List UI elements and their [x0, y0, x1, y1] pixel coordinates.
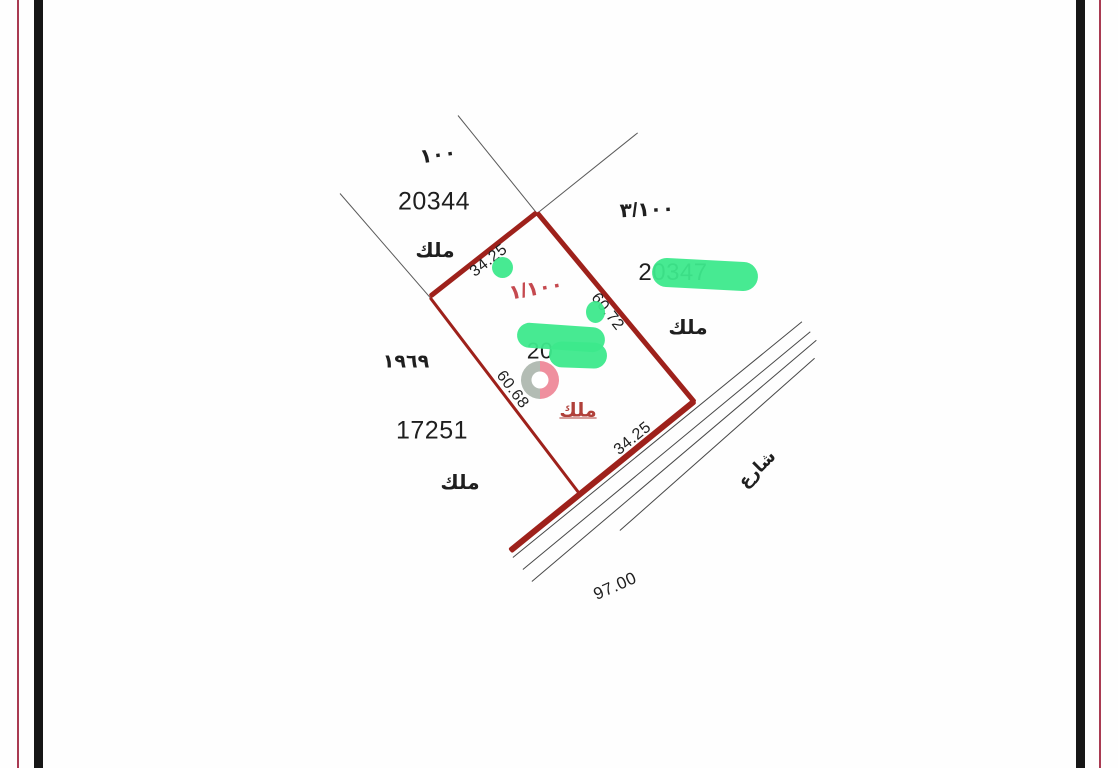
- highlight-east-number: [651, 257, 758, 292]
- highlight-dot-top: [492, 257, 513, 278]
- west-plot-ref: ١٩٦٩: [383, 353, 429, 372]
- frame-right-black-bar: [1076, 0, 1085, 768]
- west-plot-tenure: ملك: [440, 473, 479, 493]
- highlight-parcel-number-2: [549, 341, 608, 369]
- east-plot-ref: ٣/١٠٠: [619, 199, 674, 222]
- highlight-dot-dim-right: [586, 301, 605, 323]
- frame-left-black-bar: [34, 0, 43, 768]
- west-plot-number: 17251: [396, 419, 468, 444]
- location-marker-icon: [521, 361, 559, 399]
- parcel-edge-right: [535, 211, 697, 404]
- street-label: شارع: [735, 447, 778, 490]
- survey-document-page: ١٠٠ 20344 ملك ٣/١٠٠ 20347 ملك ١٩٦٩ 17251…: [0, 0, 1118, 768]
- east-plot-tenure: ملك: [668, 318, 707, 338]
- frame-right-red-line: [1099, 0, 1101, 768]
- parcel-tenure: ملك: [559, 402, 596, 421]
- north-plot-ref: ١٠٠: [418, 143, 457, 168]
- road-frontage-length: 97.00: [591, 569, 639, 603]
- parcel-plan-ref: ١/١٠٠: [507, 274, 564, 303]
- north-plot-number: 20344: [398, 190, 470, 215]
- north-plot-tenure: ملك: [415, 241, 454, 261]
- frame-left-red-line: [17, 0, 19, 768]
- parcel-frontage-line: [508, 399, 696, 554]
